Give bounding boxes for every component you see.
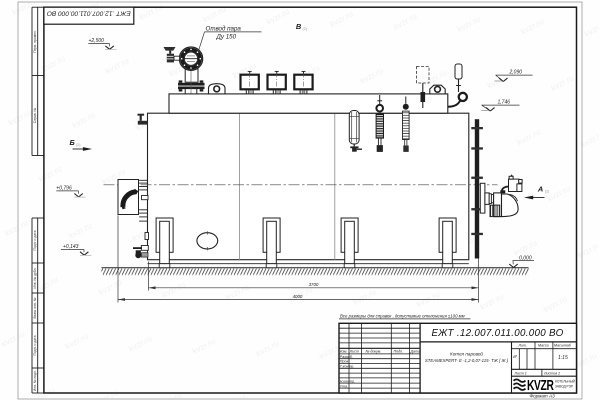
svg-text:Лист 1: Лист 1 bbox=[514, 372, 527, 376]
svg-text:Инв. № подл.: Инв. № подл. bbox=[33, 370, 37, 391]
svg-text:(2): (2) bbox=[545, 190, 549, 194]
svg-text:Инв. № дубл.: Инв. № дубл. bbox=[33, 267, 37, 288]
svg-text:Все размеры для справок , допу: Все размеры для справок , допустимые отк… bbox=[340, 313, 465, 318]
svg-text:Ду 150: Ду 150 bbox=[216, 33, 237, 40]
svg-text:Б: Б bbox=[70, 138, 75, 147]
svg-text:ЕЖТ .12.007.011.00.000 ВО: ЕЖТ .12.007.011.00.000 ВО bbox=[431, 328, 563, 339]
svg-text:(2): (2) bbox=[303, 27, 307, 31]
svg-text:4000: 4000 bbox=[293, 294, 303, 299]
svg-text:Пров.: Пров. bbox=[340, 360, 349, 364]
svg-text:Подп.: Подп. bbox=[394, 349, 404, 353]
svg-text:Подп. и дата: Подп. и дата bbox=[33, 230, 37, 250]
svg-text:1:15: 1:15 bbox=[558, 355, 568, 361]
svg-text:+2,500: +2,500 bbox=[89, 38, 105, 44]
svg-text:Справ. №: Справ. № bbox=[33, 107, 37, 123]
svg-text:Листов 2: Листов 2 bbox=[543, 372, 560, 376]
svg-text:Н.контр.: Н.контр. bbox=[340, 379, 355, 383]
svg-text:Перв. примен.: Перв. примен. bbox=[33, 30, 37, 53]
svg-text:А: А bbox=[537, 185, 543, 194]
svg-text:KVZR: KVZR bbox=[527, 378, 554, 394]
svg-text:Масштаб: Масштаб bbox=[554, 344, 572, 348]
svg-text:В: В bbox=[296, 22, 302, 31]
svg-text:Масса: Масса bbox=[538, 344, 549, 348]
svg-text:Лист: Лист bbox=[349, 349, 359, 353]
svg-text:(2): (2) bbox=[76, 143, 80, 147]
svg-text:№ докум.: № докум. bbox=[366, 349, 382, 353]
svg-text:Лит.: Лит. bbox=[518, 344, 527, 348]
svg-text:Котел паровой: Котел паровой bbox=[450, 350, 483, 356]
svg-text:Т.контр.: Т.контр. bbox=[340, 365, 355, 369]
svg-text:ЕЖТ .12.007.011.00.000 ВО: ЕЖТ .12.007.011.00.000 ВО bbox=[47, 10, 131, 17]
svg-text:Разраб.: Разраб. bbox=[340, 355, 353, 359]
svg-text:Формат А3: Формат А3 bbox=[530, 393, 556, 398]
svg-text:+0,796: +0,796 bbox=[56, 185, 72, 191]
svg-text:Изм.: Изм. bbox=[340, 349, 348, 353]
svg-text:Подп. и дата: Подп. и дата bbox=[33, 335, 37, 355]
svg-text:STEAMEXPERT- Е -1,2-0,07-115-: STEAMEXPERT- Е -1,2-0,07-115- ТЖ ( Ж ) bbox=[425, 358, 509, 363]
svg-text:Дата: Дата bbox=[410, 349, 420, 353]
svg-text:3700: 3700 bbox=[309, 282, 319, 287]
svg-text:Утв.: Утв. bbox=[340, 384, 348, 388]
svg-text:КОТЕЛЬНЫЙ: КОТЕЛЬНЫЙ bbox=[555, 379, 576, 383]
svg-text:2,090: 2,090 bbox=[509, 70, 523, 76]
svg-text:ЗАВОД РЭР: ЗАВОД РЭР bbox=[555, 384, 573, 388]
svg-text:Взам. инв. №: Взам. инв. № bbox=[33, 297, 37, 318]
